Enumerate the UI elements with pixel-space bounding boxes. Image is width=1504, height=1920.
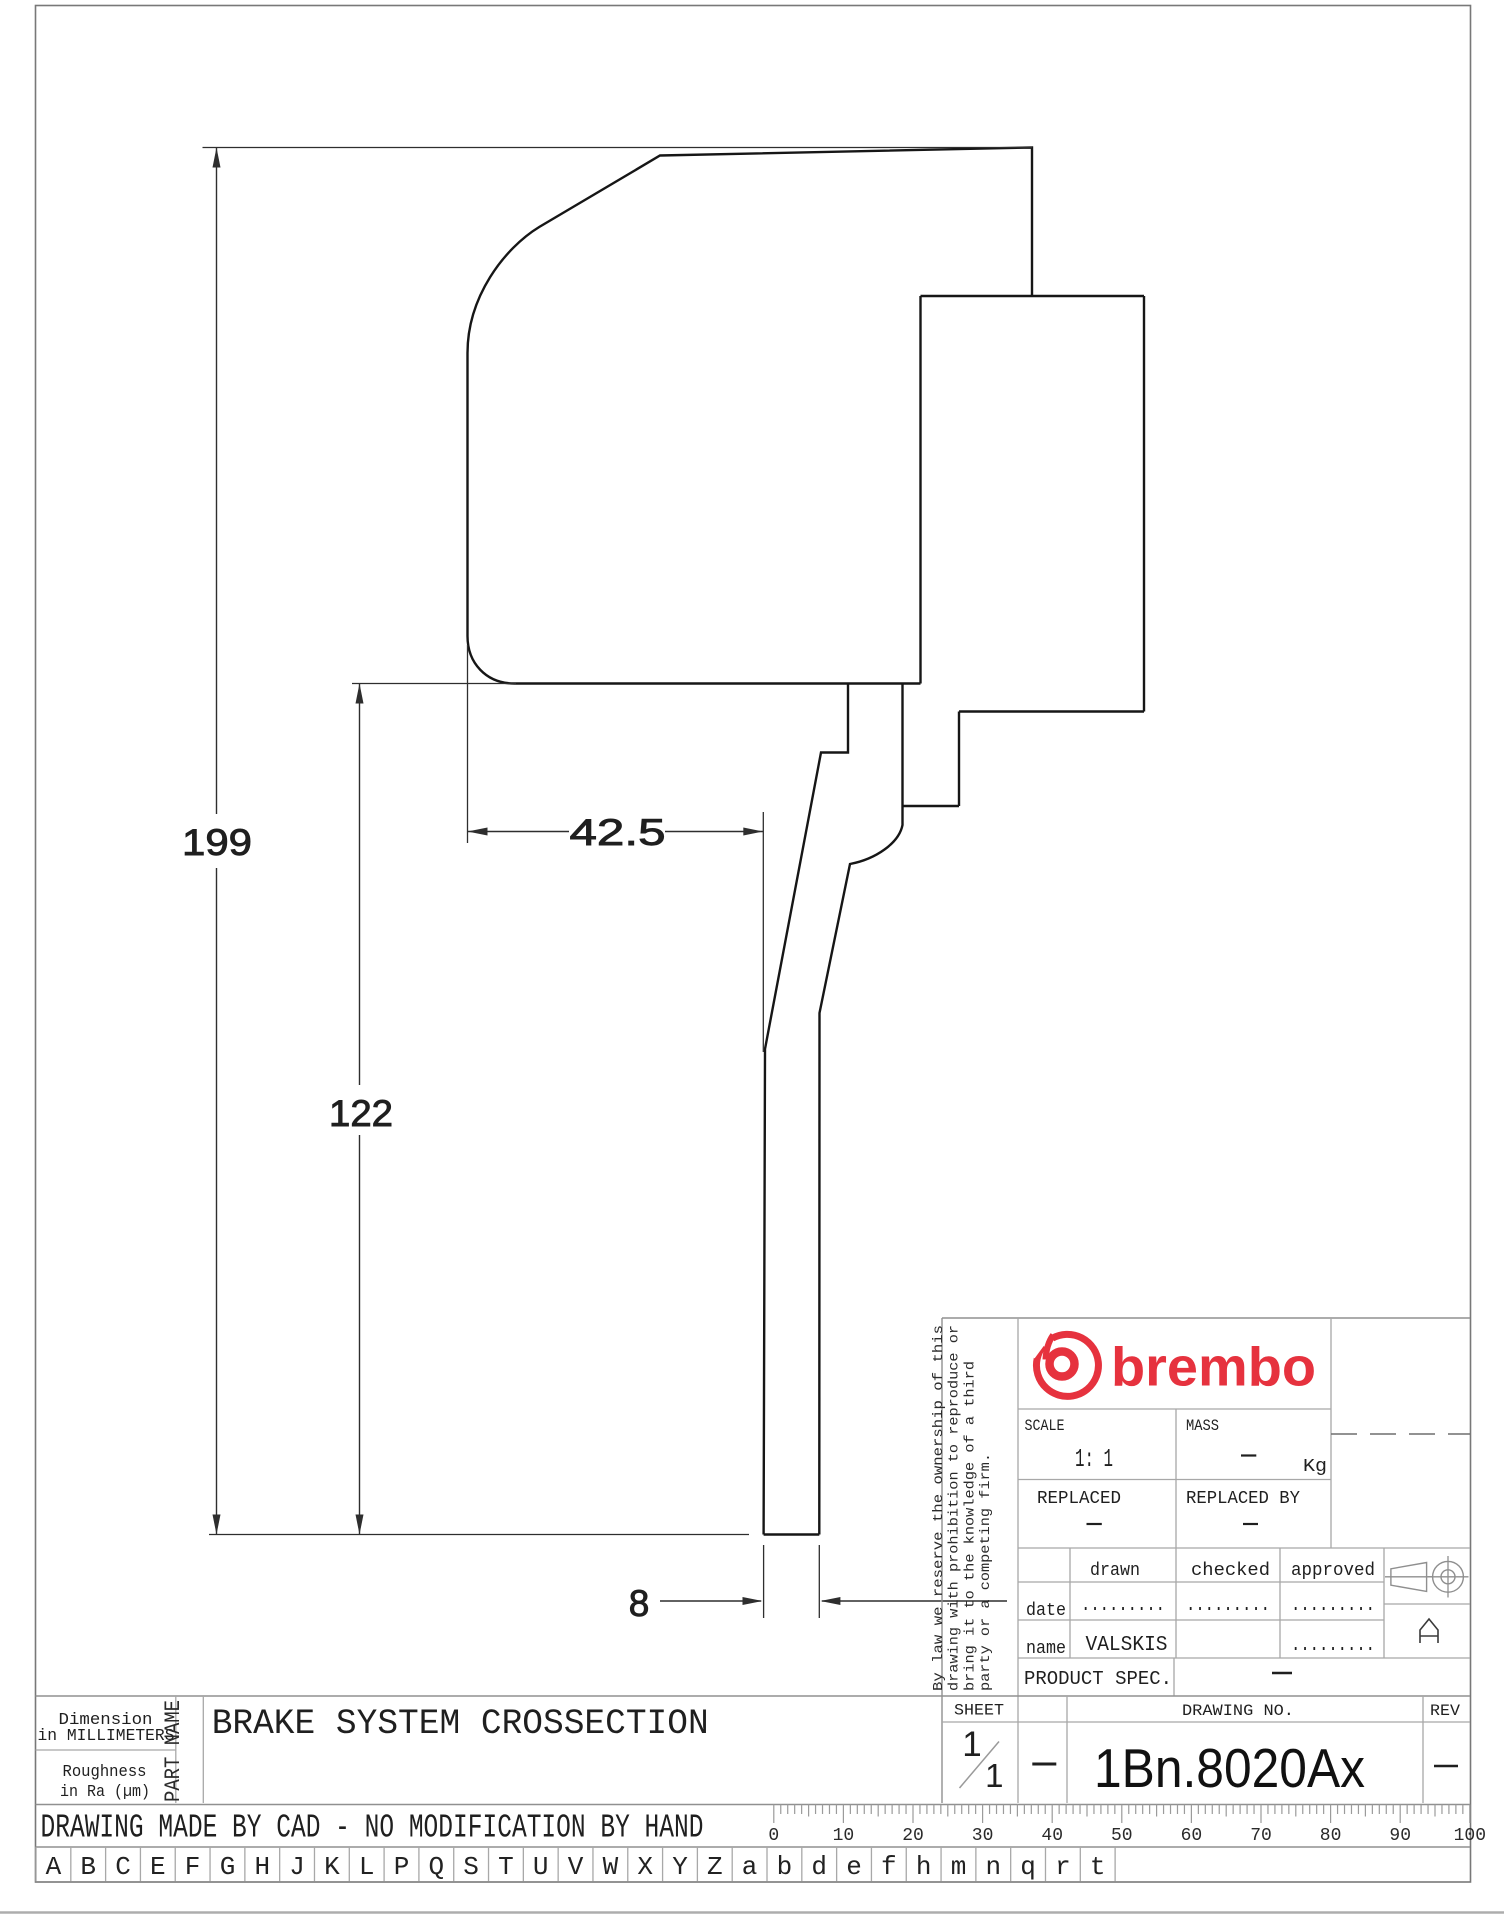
svg-text:drawn: drawn <box>1090 1561 1140 1581</box>
svg-text:B: B <box>80 1852 96 1882</box>
svg-text:SHEET: SHEET <box>954 1702 1004 1720</box>
svg-text:in Ra (µm): in Ra (µm) <box>60 1783 150 1802</box>
svg-text:Y: Y <box>672 1852 688 1882</box>
svg-text:W: W <box>603 1852 619 1882</box>
svg-text:Z: Z <box>707 1852 723 1882</box>
svg-text:50: 50 <box>1111 1826 1133 1846</box>
svg-text:E: E <box>150 1852 166 1882</box>
svg-text:VALSKIS: VALSKIS <box>1086 1634 1168 1657</box>
svg-text:bring it to the knowledge of a: bring it to the knowledge of a third <box>963 1361 978 1691</box>
svg-text:Kg: Kg <box>1303 1457 1327 1477</box>
svg-text:f: f <box>881 1852 897 1882</box>
svg-text:h: h <box>916 1852 932 1882</box>
svg-text:S: S <box>463 1852 479 1882</box>
svg-text:K: K <box>324 1852 340 1882</box>
svg-text:30: 30 <box>972 1826 994 1846</box>
svg-text:q: q <box>1020 1852 1036 1882</box>
svg-text:60: 60 <box>1181 1826 1203 1846</box>
svg-text:BRAKE SYSTEM CROSSECTION: BRAKE SYSTEM CROSSECTION <box>212 1704 709 1744</box>
svg-text:C: C <box>115 1852 131 1882</box>
svg-text:REV: REV <box>1430 1702 1460 1720</box>
svg-text:1: 1 <box>985 1757 1003 1794</box>
svg-text:PART NAME: PART NAME <box>161 1700 186 1802</box>
svg-text:G: G <box>220 1852 236 1882</box>
svg-text:70: 70 <box>1250 1826 1272 1846</box>
svg-text:e: e <box>846 1852 862 1882</box>
svg-text:P: P <box>394 1852 410 1882</box>
svg-text:40: 40 <box>1041 1826 1063 1846</box>
svg-text:80: 80 <box>1320 1826 1342 1846</box>
svg-text:m: m <box>951 1852 967 1882</box>
svg-text:199: 199 <box>182 822 252 863</box>
svg-text:L: L <box>359 1852 375 1882</box>
svg-text:b: b <box>777 1852 793 1882</box>
svg-text:date: date <box>1026 1601 1066 1621</box>
svg-text:DRAWING MADE BY CAD - NO MODIF: DRAWING MADE BY CAD - NO MODIFICATION BY… <box>41 1810 704 1847</box>
svg-text:MASS: MASS <box>1186 1417 1219 1435</box>
svg-text:Roughness: Roughness <box>63 1763 147 1782</box>
svg-text:approved: approved <box>1291 1561 1375 1581</box>
svg-text:J: J <box>289 1852 305 1882</box>
svg-text:d: d <box>811 1852 827 1882</box>
svg-text:100: 100 <box>1454 1826 1486 1846</box>
svg-text:PRODUCT SPEC.: PRODUCT SPEC. <box>1024 1668 1172 1690</box>
svg-text:H: H <box>254 1852 270 1882</box>
svg-text:42.5: 42.5 <box>570 812 666 853</box>
svg-text:drawing with prohibition to re: drawing with prohibition to reproduce or <box>948 1325 963 1691</box>
svg-text:brembo: brembo <box>1111 1336 1316 1398</box>
svg-text:V: V <box>568 1852 584 1882</box>
svg-text:0: 0 <box>768 1826 779 1846</box>
svg-text:1: 1: 1: 1 <box>1075 1444 1113 1474</box>
svg-text:Q: Q <box>428 1852 444 1882</box>
svg-text:X: X <box>637 1852 653 1882</box>
svg-text:1Bn.8020Ax: 1Bn.8020Ax <box>1094 1737 1365 1799</box>
svg-text:SCALE: SCALE <box>1025 1417 1065 1435</box>
svg-text:10: 10 <box>833 1826 855 1846</box>
svg-text:.........: ......... <box>1081 1594 1165 1617</box>
svg-text:r: r <box>1055 1852 1071 1882</box>
svg-text:8: 8 <box>629 1583 650 1624</box>
svg-text:t: t <box>1090 1852 1106 1882</box>
svg-text:party or a competing firm.: party or a competing firm. <box>979 1453 994 1691</box>
svg-text:122: 122 <box>329 1093 393 1134</box>
svg-text:name: name <box>1026 1639 1066 1659</box>
svg-text:90: 90 <box>1389 1826 1411 1846</box>
svg-text:in MILLIMETERS: in MILLIMETERS <box>38 1727 175 1746</box>
svg-text:REPLACED: REPLACED <box>1037 1489 1121 1509</box>
svg-text:.........: ......... <box>1291 1594 1375 1617</box>
svg-text:U: U <box>533 1852 549 1882</box>
svg-text:checked: checked <box>1191 1561 1270 1581</box>
svg-text:A: A <box>46 1852 62 1882</box>
svg-text:.........: ......... <box>1186 1594 1270 1617</box>
svg-text:T: T <box>498 1852 514 1882</box>
svg-text:By law we reserve the ownershi: By law we reserve the ownership of this <box>932 1325 947 1691</box>
svg-text:.........: ......... <box>1291 1634 1375 1657</box>
svg-text:F: F <box>185 1852 201 1882</box>
svg-text:DRAWING NO.: DRAWING NO. <box>1182 1702 1294 1720</box>
svg-text:20: 20 <box>902 1826 924 1846</box>
svg-text:REPLACED BY: REPLACED BY <box>1186 1489 1300 1509</box>
svg-text:n: n <box>985 1852 1001 1882</box>
svg-text:a: a <box>742 1852 758 1882</box>
svg-text:1: 1 <box>962 1725 981 1764</box>
